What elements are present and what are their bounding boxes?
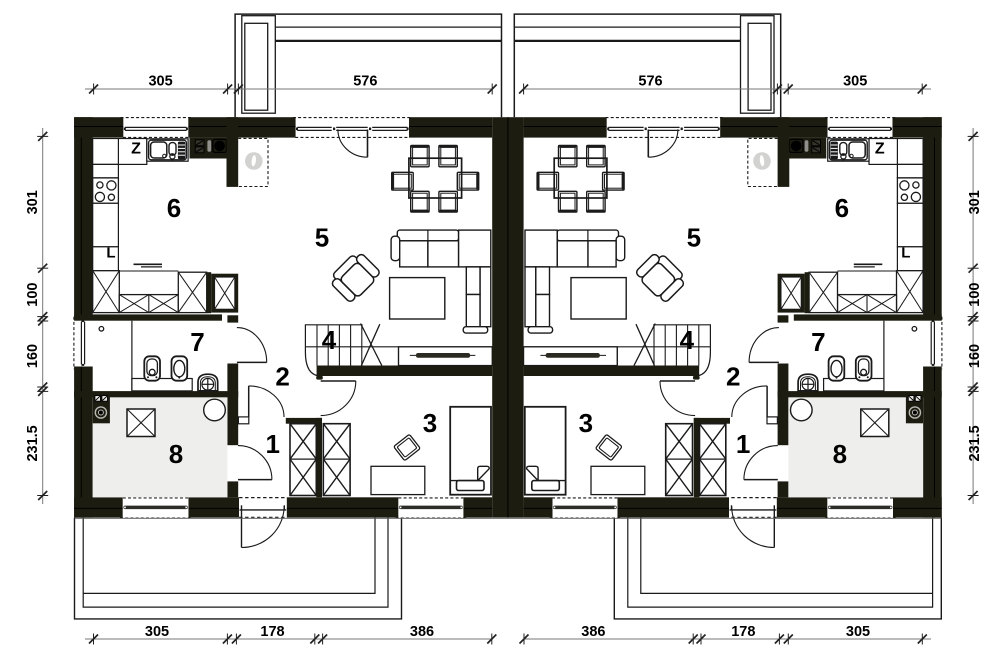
svg-text:7: 7 [811,327,825,357]
svg-text:305: 305 [145,624,169,640]
svg-text:6: 6 [167,193,181,223]
svg-text:231.5: 231.5 [25,425,41,461]
svg-text:4: 4 [680,325,695,355]
svg-text:231.5: 231.5 [967,425,983,461]
svg-text:386: 386 [581,624,605,640]
svg-text:576: 576 [638,74,662,90]
svg-text:5: 5 [315,223,329,253]
svg-text:100: 100 [25,282,41,306]
svg-text:Z: Z [875,141,885,158]
svg-text:178: 178 [260,624,284,640]
svg-text:1: 1 [736,429,750,459]
svg-text:5: 5 [687,223,701,253]
svg-text:301: 301 [967,190,983,214]
svg-text:6: 6 [835,193,849,223]
svg-text:4: 4 [322,325,337,355]
svg-text:576: 576 [353,74,377,90]
svg-text:100: 100 [967,282,983,306]
svg-text:305: 305 [843,74,867,90]
svg-text:305: 305 [846,624,870,640]
svg-text:301: 301 [25,190,41,214]
svg-text:305: 305 [148,74,172,90]
svg-text:L: L [901,245,910,262]
svg-text:7: 7 [190,327,204,357]
svg-text:Z: Z [131,141,141,158]
svg-text:8: 8 [169,439,183,469]
svg-text:1: 1 [265,429,279,459]
svg-text:160: 160 [967,344,983,368]
svg-text:8: 8 [833,439,847,469]
svg-text:3: 3 [423,408,437,438]
svg-text:386: 386 [410,624,434,640]
svg-text:2: 2 [275,362,289,392]
svg-text:L: L [106,245,115,262]
svg-text:2: 2 [726,362,740,392]
svg-text:3: 3 [579,408,593,438]
svg-text:178: 178 [731,624,755,640]
svg-text:160: 160 [25,344,41,368]
